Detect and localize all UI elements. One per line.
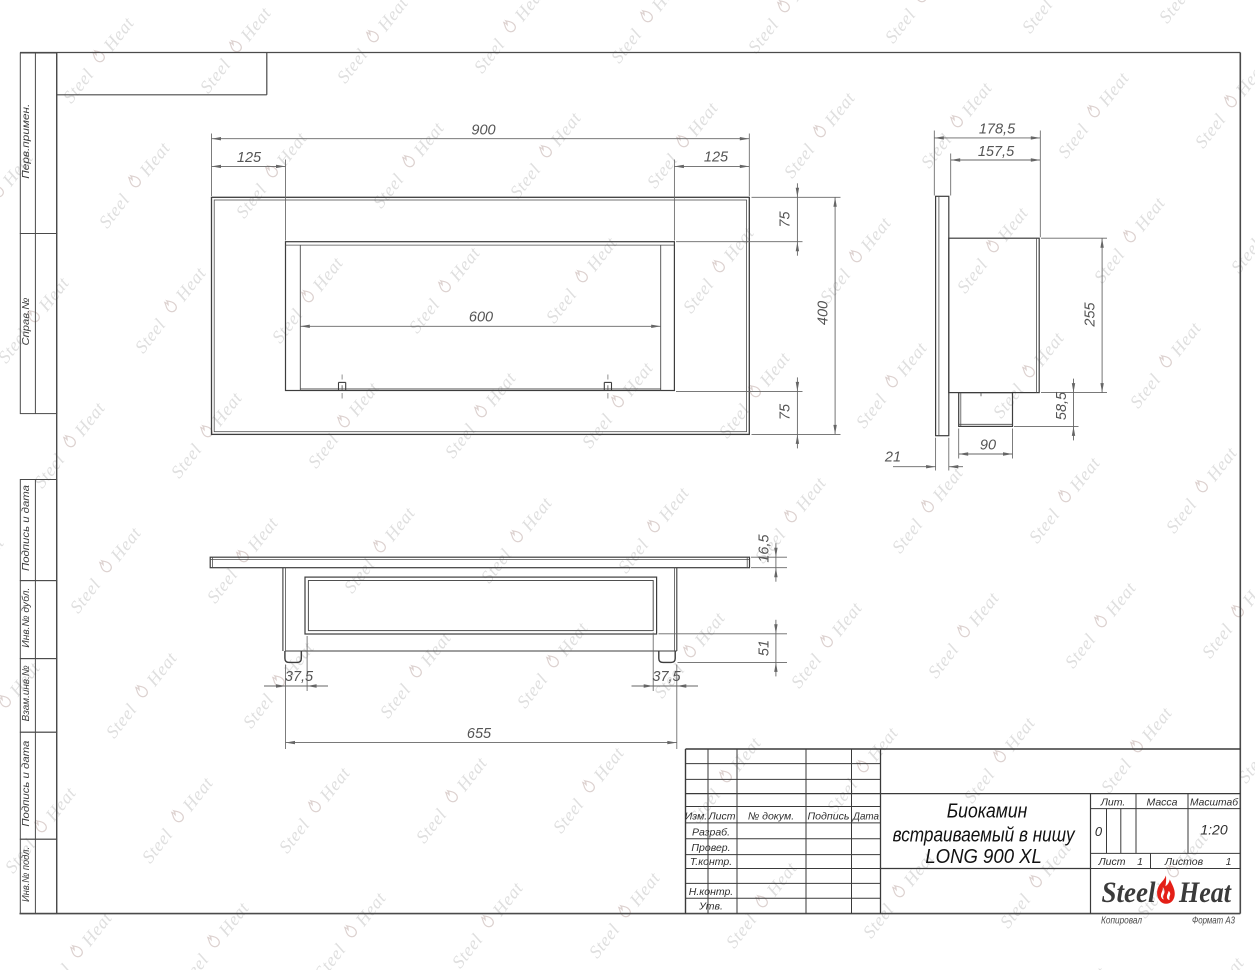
- svg-text:0: 0: [1095, 824, 1103, 839]
- svg-text:Лист: Лист: [1097, 856, 1125, 868]
- svg-text:600: 600: [469, 310, 493, 326]
- svg-text:Инв.№ дубл.: Инв.№ дубл.: [20, 588, 32, 648]
- svg-text:75: 75: [778, 403, 794, 420]
- svg-text:Взам.инв.№: Взам.инв.№: [21, 665, 32, 721]
- svg-text:Утв.: Утв.: [698, 901, 723, 913]
- svg-text:Копировал: Копировал: [1101, 916, 1142, 927]
- svg-text:1:20: 1:20: [1200, 822, 1227, 838]
- svg-text:Провер.: Провер.: [691, 842, 730, 854]
- svg-text:Биокамин: Биокамин: [947, 800, 1028, 823]
- svg-text:400: 400: [816, 301, 832, 325]
- svg-text:Heat: Heat: [1178, 876, 1232, 909]
- svg-text:90: 90: [980, 438, 996, 454]
- svg-text:900: 900: [471, 123, 495, 139]
- svg-text:Подпись и дата: Подпись и дата: [21, 485, 32, 571]
- svg-text:655: 655: [467, 726, 492, 742]
- svg-text:LONG 900 XL: LONG 900 XL: [925, 845, 1042, 868]
- svg-text:Т.контр.: Т.контр.: [690, 856, 732, 868]
- svg-text:Лист: Лист: [707, 811, 735, 823]
- svg-text:16,5: 16,5: [756, 533, 772, 562]
- svg-text:Формат А3: Формат А3: [1192, 916, 1235, 927]
- svg-text:1: 1: [1137, 856, 1143, 868]
- svg-text:Лит.: Лит.: [1100, 796, 1126, 808]
- svg-text:157,5: 157,5: [978, 144, 1015, 160]
- svg-text:21: 21: [884, 450, 901, 466]
- svg-text:Перв.примен.: Перв.примен.: [21, 104, 32, 179]
- svg-text:Steel: Steel: [1102, 876, 1157, 909]
- svg-text:178,5: 178,5: [979, 122, 1016, 138]
- svg-text:Разраб.: Разраб.: [692, 827, 730, 839]
- svg-text:75: 75: [778, 211, 794, 228]
- svg-text:37,5: 37,5: [652, 669, 681, 685]
- svg-text:37,5: 37,5: [285, 669, 314, 685]
- svg-text:Изм.: Изм.: [685, 811, 707, 823]
- svg-text:125: 125: [704, 150, 729, 166]
- svg-text:Подпись: Подпись: [808, 811, 850, 823]
- svg-text:Справ.№: Справ.№: [21, 297, 32, 345]
- svg-text:51: 51: [756, 640, 772, 656]
- svg-text:№ докум.: № докум.: [748, 811, 794, 823]
- svg-text:Н.контр.: Н.контр.: [689, 886, 733, 898]
- svg-text:125: 125: [237, 150, 262, 166]
- svg-text:Масштаб: Масштаб: [1190, 796, 1239, 808]
- svg-text:Инв.№ подл.: Инв.№ подл.: [21, 847, 32, 902]
- svg-text:1: 1: [1226, 856, 1232, 868]
- svg-text:Листов: Листов: [1164, 856, 1204, 868]
- svg-text:Масса: Масса: [1146, 796, 1177, 808]
- svg-text:255: 255: [1083, 301, 1099, 327]
- svg-text:встраиваемый в нишу: встраиваемый в нишу: [893, 824, 1076, 847]
- svg-text:58,5: 58,5: [1054, 391, 1070, 420]
- svg-text:Подпись и дата: Подпись и дата: [21, 740, 32, 826]
- svg-text:Дата: Дата: [852, 811, 879, 823]
